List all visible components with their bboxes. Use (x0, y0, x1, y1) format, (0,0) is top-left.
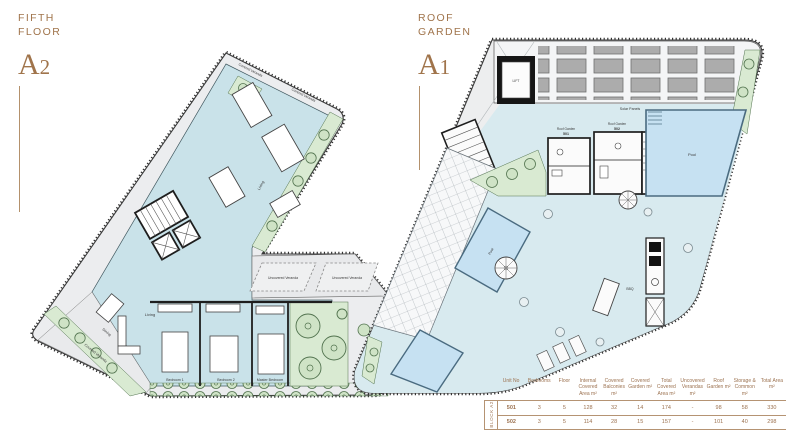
floor-label-line1: FIFTH (18, 12, 61, 26)
roof-garden-502-label: Roof Garden (608, 122, 626, 126)
cell-covered-garden: 14 (627, 400, 653, 415)
cell-unit-no: 501 (498, 400, 525, 415)
col-uncovered-verandas: Uncovered Verandas m² (679, 377, 705, 400)
roof-garden-501-label: Roof Garden (557, 127, 575, 131)
floor-label-line1: ROOF (418, 12, 471, 26)
cell-storage-common: 58 (732, 400, 758, 415)
cell-internal-covered: 114 (575, 415, 601, 430)
col-total-covered: Total Covered Area m² (653, 377, 679, 400)
block-label: BLOCK A2 (489, 401, 494, 428)
table-header-empty (485, 377, 498, 400)
cell-covered-balconies: 32 (601, 400, 627, 415)
col-unit-no: Unit No (498, 377, 525, 400)
title-divider-line-left (19, 86, 20, 212)
uncovered-veranda-label: Uncovered Veranda (268, 276, 298, 280)
solar-panels-label: Solar Panels (620, 107, 641, 111)
roof-garden-502-number: 502 (614, 127, 620, 131)
unit-data-table: Unit No Bedrooms Floor Internal Covered … (484, 377, 786, 430)
cell-total-area: 330 (758, 400, 786, 415)
lift-core-a1: LIFT (497, 56, 535, 104)
cell-bedrooms: 3 (525, 400, 554, 415)
col-internal-covered: Internal Covered Area m² (575, 377, 601, 400)
col-bedrooms: Bedrooms (525, 377, 554, 400)
floor-plan-a1: Solar Panels LIFT (340, 28, 788, 398)
cell-covered-garden: 15 (627, 415, 653, 430)
cell-uncovered-verandas: - (679, 415, 705, 430)
cell-floor: 5 (554, 415, 575, 430)
table-row-501: BLOCK A2 501 3 5 128 32 14 174 - 98 58 3… (485, 400, 787, 415)
pool-label: Pool (688, 152, 696, 157)
cell-bedrooms: 3 (525, 415, 554, 430)
roof-garden-501-number: 501 (563, 132, 569, 136)
page: FIFTH FLOOR A2 ROOF GARDEN A1 (0, 0, 790, 445)
bedroom1-label: Bedroom 1 (166, 378, 184, 382)
living-label: Living (145, 312, 155, 317)
col-covered-balconies: Covered Balconies m² (601, 377, 627, 400)
cell-storage-common: 40 (732, 415, 758, 430)
floor-label-line2: FLOOR (18, 26, 61, 40)
table-row-502: 502 3 5 114 28 15 157 - 101 40 298 (485, 415, 787, 430)
cell-roof-garden: 101 (706, 415, 732, 430)
cell-unit-no: 502 (498, 415, 525, 430)
pool-right: Pool (646, 110, 746, 196)
lift-label: LIFT (513, 79, 520, 83)
cell-covered-balconies: 28 (601, 415, 627, 430)
unit-table: Unit No Bedrooms Floor Internal Covered … (484, 377, 786, 430)
spiral-stair (495, 257, 517, 279)
col-floor: Floor (554, 377, 575, 400)
cell-uncovered-verandas: - (679, 400, 705, 415)
bedroom2-label: Bedroom 2 (217, 378, 235, 382)
cell-total-covered: 174 (653, 400, 679, 415)
col-storage-common: Storage & Common m² (732, 377, 758, 400)
cell-internal-covered: 128 (575, 400, 601, 415)
cell-total-area: 298 (758, 415, 786, 430)
bbq-label: BBQ (626, 287, 634, 291)
block-label-cell: BLOCK A2 (485, 400, 498, 430)
cell-floor: 5 (554, 400, 575, 415)
col-roof-garden: Roof Garden m² (706, 377, 732, 400)
col-covered-garden: Covered Garden m² (627, 377, 653, 400)
cell-roof-garden: 98 (706, 400, 732, 415)
table-header-row: Unit No Bedrooms Floor Internal Covered … (485, 377, 787, 400)
cell-total-covered: 157 (653, 415, 679, 430)
master-bedroom-label: Master Bedroom (257, 378, 284, 382)
spiral-stair (619, 191, 637, 209)
col-total-area: Total Area m² (758, 377, 786, 400)
